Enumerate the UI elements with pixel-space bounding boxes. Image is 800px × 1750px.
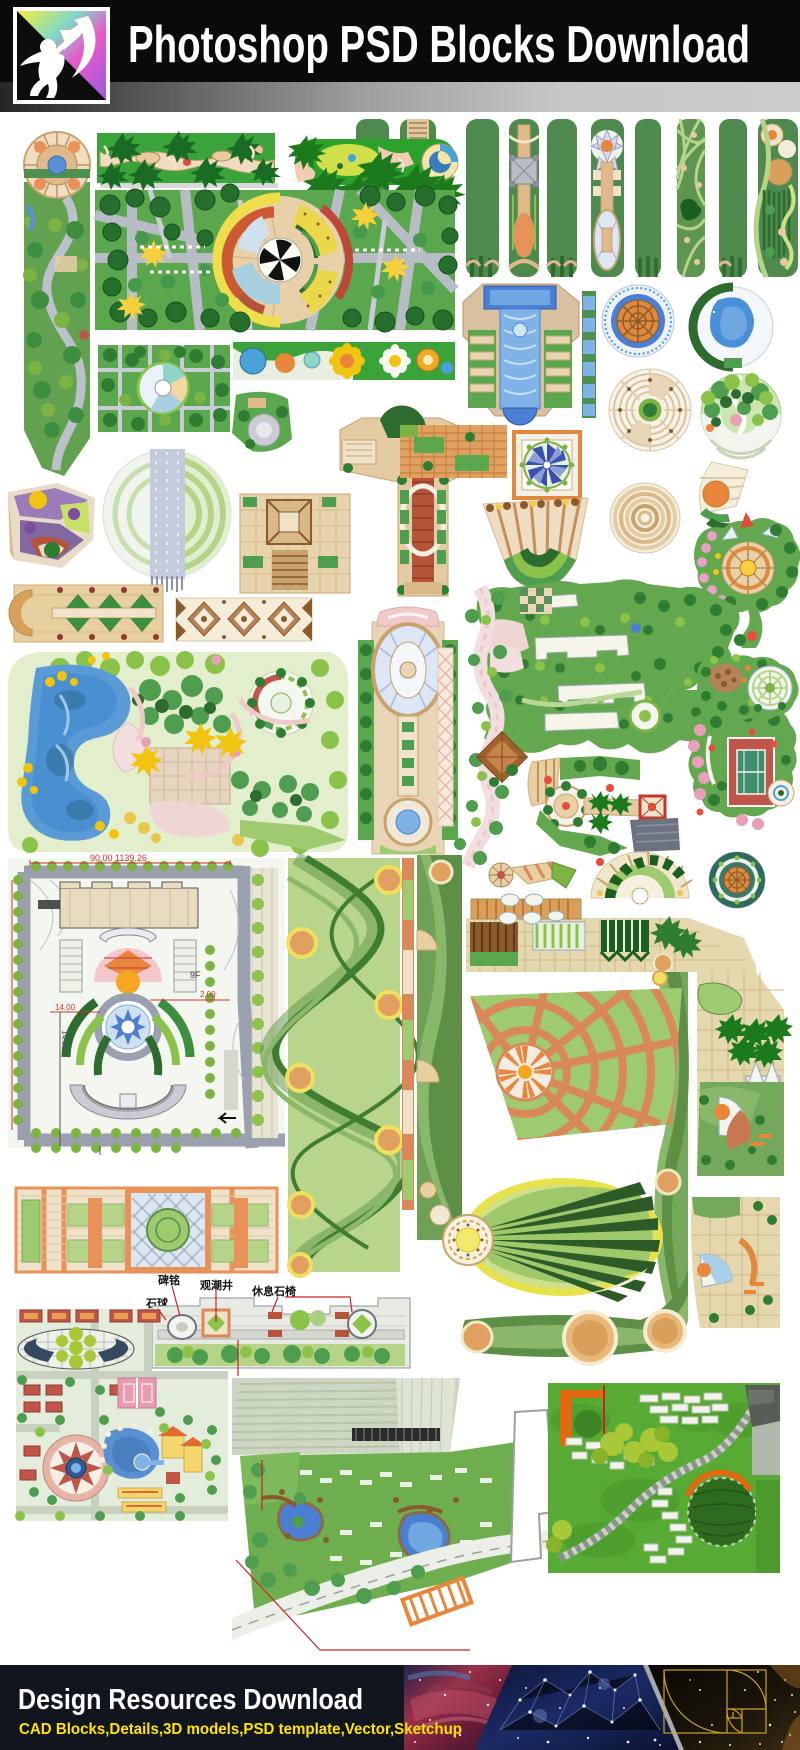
svg-text:观潮井: 观潮井	[200, 1278, 233, 1292]
svg-text:90.00 1139.26: 90.00 1139.26	[90, 853, 147, 863]
svg-text:CAD Blocks,Details,3D models,P: CAD Blocks,Details,3D models,PSD templat…	[19, 1721, 462, 1738]
svg-text:Design Resources Download: Design Resources Download	[18, 1684, 363, 1716]
svg-text:2.00: 2.00	[200, 990, 216, 999]
svg-text:Photoshop PSD Blocks Download: Photoshop PSD Blocks Download	[128, 16, 750, 74]
svg-text:休息石椅: 休息石椅	[251, 1284, 296, 1298]
svg-text:14.00: 14.00	[60, 1030, 69, 1051]
svg-text:9F: 9F	[190, 970, 201, 980]
svg-text:14.00: 14.00	[55, 1003, 76, 1012]
svg-text:碑铭: 碑铭	[157, 1273, 180, 1287]
